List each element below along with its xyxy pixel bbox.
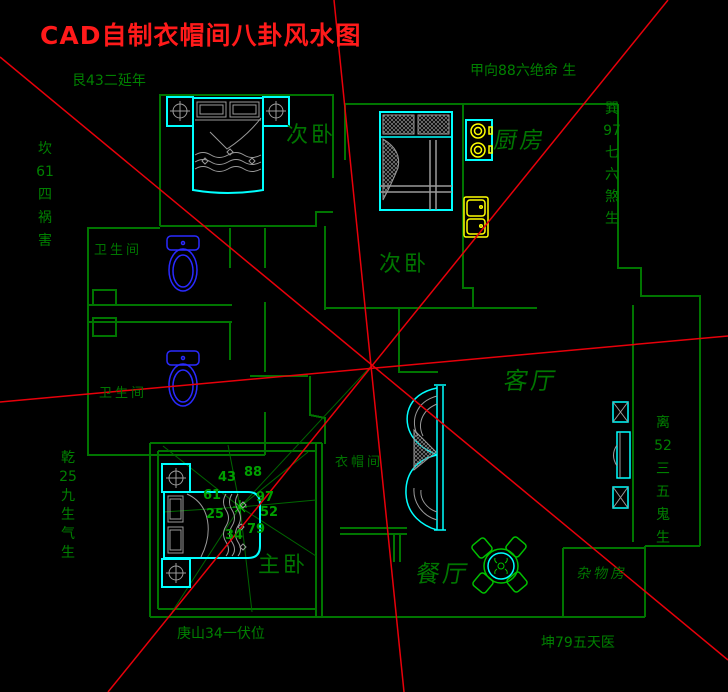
table-plant-icon (495, 558, 508, 574)
stove (466, 120, 492, 160)
bed-top-left (167, 97, 289, 193)
living-curtain (406, 385, 446, 530)
toilet-2 (167, 351, 199, 406)
bagua-label-gen: 艮43二延年 (72, 74, 146, 89)
room-label-bedroom-middle: 次卧 (379, 253, 429, 277)
page-title: CAD自制衣帽间八卦风水图 (40, 22, 361, 50)
mini-bagua-number: 34 (225, 529, 243, 543)
bed-top-middle (380, 112, 452, 210)
room-label-bathroom-1: 卫生间 (94, 244, 142, 258)
bagua-label-xun: 巽97七六煞生 (601, 98, 623, 230)
mini-bagua-number: 61 (203, 489, 221, 503)
bagua-label-geng: 庚山34一伏位 (177, 627, 265, 642)
bagua-label-li: 离52三五鬼生 (652, 412, 674, 550)
bagua-label-kan: 坎61四祸害 (34, 138, 56, 253)
room-label-storage: 杂物房 (576, 567, 630, 582)
tv-cabinet (613, 402, 630, 508)
mini-bagua-number: 79 (247, 523, 265, 537)
mini-bagua-number: 88 (244, 466, 262, 480)
room-label-cloakroom: 衣帽间 (335, 456, 383, 470)
room-label-bedroom-top: 次卧 (286, 124, 336, 148)
mini-bagua-number: 97 (256, 491, 274, 505)
room-label-living: 客厅 (502, 368, 561, 394)
room-label-dining: 餐厅 (414, 561, 473, 587)
bagua-label-jia: 甲向88六绝命 生 (470, 64, 576, 79)
mini-bagua-number: 52 (260, 506, 278, 520)
bagua-label-kun: 坤79五天医 (541, 636, 615, 651)
room-label-kitchen: 厨房 (492, 129, 548, 154)
room-label-bathroom-2: 卫生间 (99, 387, 147, 401)
kitchen-sink (464, 197, 488, 237)
toilet-1 (167, 236, 199, 291)
mini-bagua-number: 25 (206, 508, 224, 522)
dining-set (471, 536, 529, 595)
mini-bagua-number: 43 (218, 471, 236, 485)
bed-master (162, 464, 260, 587)
bagua-label-qian: 乾25九生气生 (57, 449, 79, 563)
cad-bagua-floorplan: CAD自制衣帽间八卦风水图 艮43二延年甲向88六绝命 生坤79五天医庚山34一… (0, 0, 728, 692)
room-label-master: 主卧 (258, 554, 308, 578)
